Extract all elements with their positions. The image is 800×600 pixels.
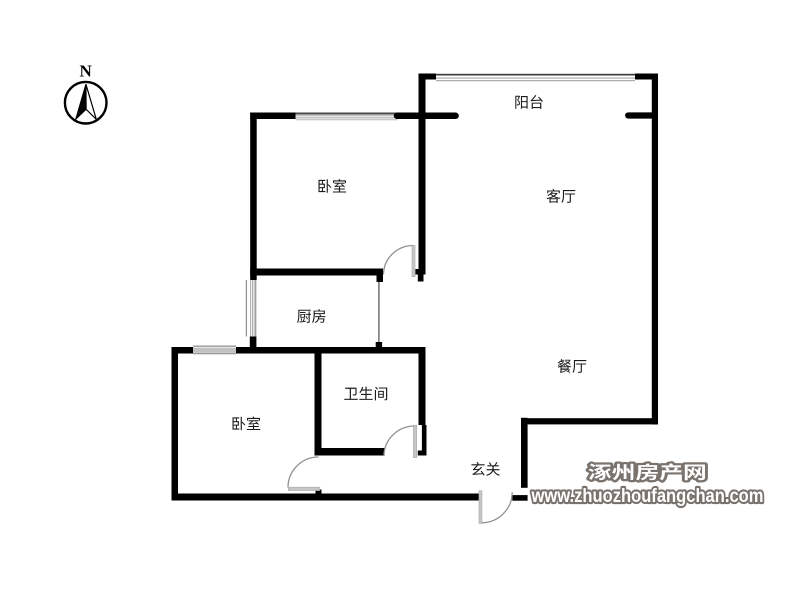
svg-text:www.zhuozhoufangchan.com: www.zhuozhoufangchan.com — [531, 485, 764, 507]
svg-text:N: N — [80, 62, 93, 81]
